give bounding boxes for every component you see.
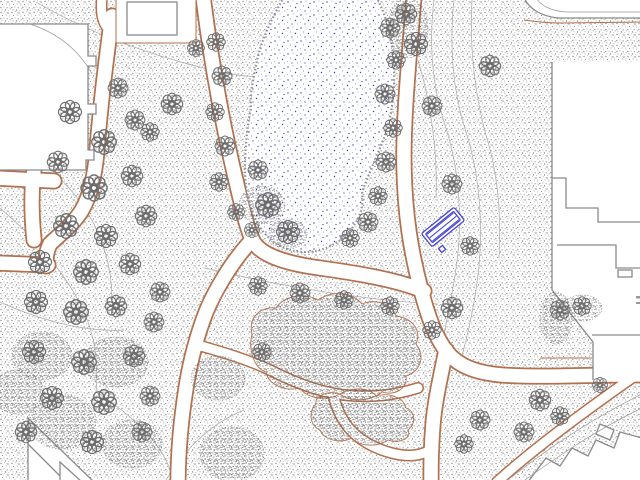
tree-symbol <box>92 130 117 155</box>
tree-symbol <box>442 174 462 194</box>
tree-symbol <box>256 193 281 218</box>
tree-symbol <box>140 386 160 406</box>
tree-symbol <box>529 389 551 411</box>
tree-symbol <box>119 253 141 275</box>
tree-symbol <box>54 214 79 239</box>
tree-symbol <box>455 435 473 453</box>
building-top-center <box>127 2 177 35</box>
tree-symbol <box>395 3 417 25</box>
tree-symbol <box>28 250 51 273</box>
tree-symbol <box>551 407 569 425</box>
building-top-left <box>0 24 96 170</box>
tree-symbol <box>387 51 405 69</box>
tree-symbol <box>514 422 534 442</box>
tree-symbol <box>248 160 268 180</box>
tree-symbol <box>358 212 378 232</box>
tree-symbol <box>47 151 69 173</box>
tree-symbol <box>376 152 396 172</box>
tree-symbol <box>141 123 159 141</box>
tree-symbol <box>121 165 143 187</box>
tree-symbol <box>335 291 353 309</box>
tree-symbol <box>380 18 400 38</box>
tree-symbol <box>573 297 591 315</box>
tree-symbol <box>22 340 45 363</box>
tree-symbol <box>276 220 299 243</box>
tree-symbol <box>212 66 232 86</box>
tree-symbol <box>423 321 441 339</box>
tree-symbol <box>132 422 152 442</box>
tree-symbol <box>244 222 259 237</box>
tree-canopy-mass <box>102 420 162 468</box>
tree-symbol <box>58 100 81 123</box>
tree-symbol <box>74 260 99 285</box>
tree-symbol <box>24 290 47 313</box>
tree-symbol <box>479 55 501 77</box>
tree-symbol <box>215 136 235 156</box>
tree-symbol <box>228 204 245 221</box>
tree-symbol <box>94 224 117 247</box>
tree-symbol <box>135 205 157 227</box>
tree-symbol <box>375 84 395 104</box>
tree-symbol <box>404 32 427 55</box>
tree-symbol <box>144 312 164 332</box>
tree-symbol <box>80 430 103 453</box>
tree-symbol <box>92 390 117 415</box>
site-plan-canvas[interactable] <box>0 0 640 480</box>
tree-symbol <box>441 297 463 319</box>
tree-symbol <box>369 187 387 205</box>
tree-symbol <box>150 282 170 302</box>
tree-symbol <box>40 386 63 409</box>
tree-symbol <box>341 229 359 247</box>
tree-symbol <box>290 283 310 303</box>
tree-symbol <box>72 350 97 375</box>
tree-symbol <box>592 377 607 392</box>
tree-symbol <box>188 40 205 57</box>
tree-symbol <box>105 295 127 317</box>
tree-symbol <box>207 33 225 51</box>
tree-symbol <box>384 119 402 137</box>
tree-symbol <box>210 173 228 191</box>
tree-symbol <box>108 78 128 98</box>
tree-symbol <box>381 297 399 315</box>
tree-symbol <box>550 300 570 320</box>
tree-symbol <box>461 237 479 255</box>
tree-symbol <box>123 345 145 367</box>
tree-symbol <box>253 343 271 361</box>
tree-symbol <box>81 175 107 201</box>
tree-symbol <box>470 410 490 430</box>
tree-symbol <box>249 277 267 295</box>
tree-symbol <box>422 96 442 116</box>
tree-symbol <box>15 421 37 443</box>
tree-symbol <box>206 103 224 121</box>
tree-symbol <box>161 93 183 115</box>
tree-canopy-mass <box>191 356 245 400</box>
tree-symbol <box>64 300 89 325</box>
tree-canopy-mass <box>200 427 264 480</box>
